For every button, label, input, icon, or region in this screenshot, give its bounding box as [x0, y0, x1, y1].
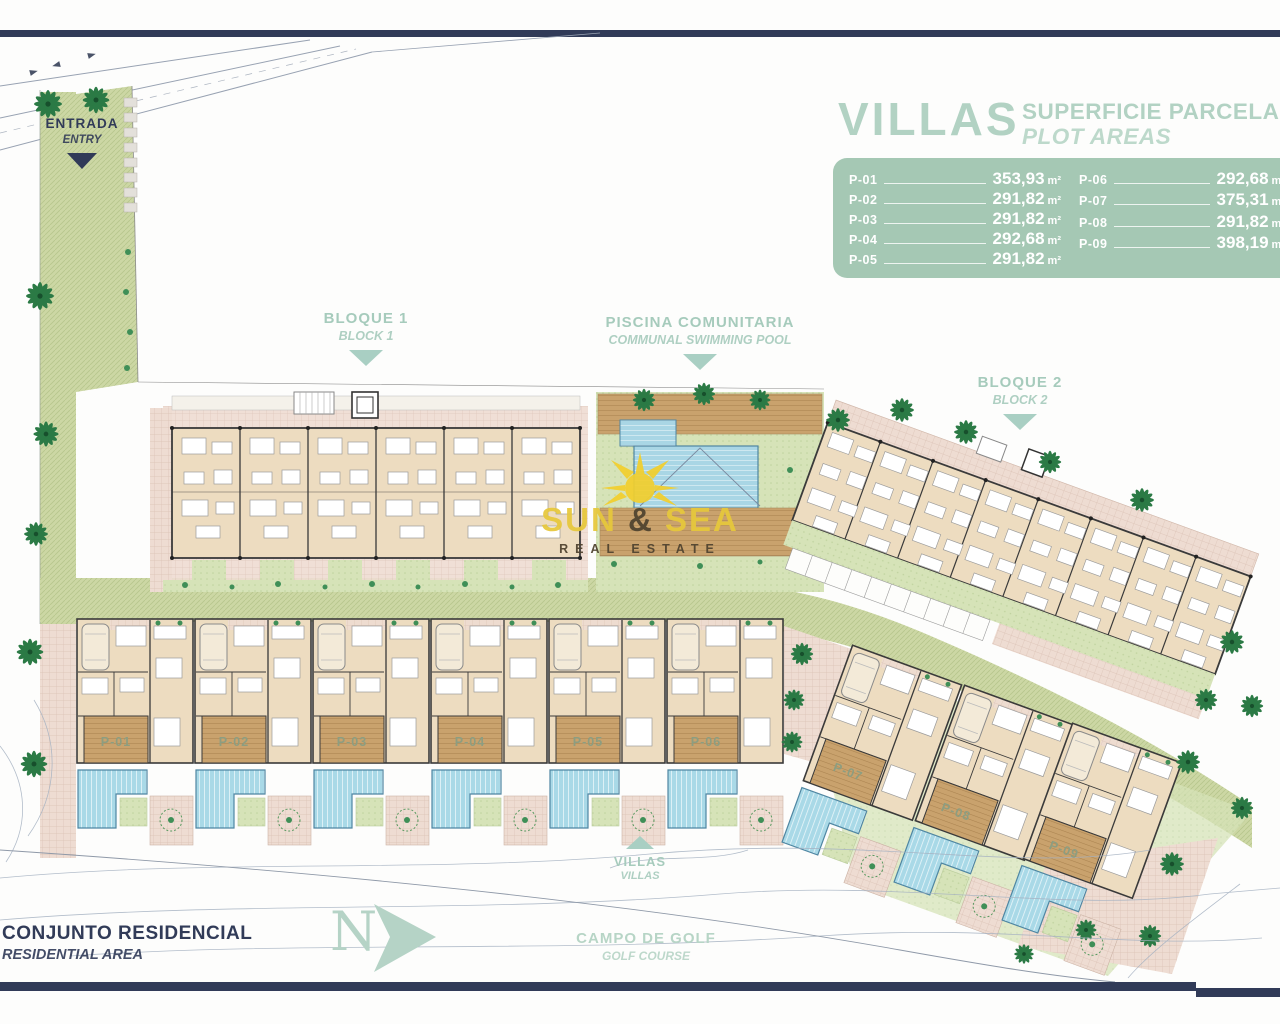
top-border-bar [0, 30, 1280, 37]
plot-id: P-07 [1079, 194, 1107, 208]
table-row: P-08291,82m² [1079, 212, 1280, 233]
block1-arrow-icon [349, 350, 383, 366]
plot-id: P-03 [849, 213, 877, 227]
plot-unit: m² [1048, 195, 1061, 207]
table-row: P-06292,68m² [1079, 169, 1280, 190]
villa-plot-label: P-05 [573, 735, 603, 749]
entrance-marker: ENTRADA ENTRY [34, 116, 130, 169]
block1-subtitle: BLOCK 1 [298, 329, 434, 345]
villa-plot-label: P-06 [691, 735, 721, 749]
golf-title: CAMPO DE GOLF [556, 930, 736, 949]
brand-sun: SUN [541, 501, 617, 538]
block1-title: BLOQUE 1 [298, 310, 434, 329]
plot-id: P-01 [849, 173, 877, 187]
pool-arrow-icon [683, 354, 717, 370]
table-row: P-03291,82m² [849, 209, 1061, 229]
leader-line [1114, 226, 1209, 227]
table-row: P-07375,31m² [1079, 190, 1280, 211]
plot-area: 398,19 [1217, 233, 1269, 253]
site-plan: ENTRADA ENTRY BLOQUE 1 BLOCK 1 PISCINA C… [0, 0, 1280, 1024]
block2-title: BLOQUE 2 [950, 374, 1090, 393]
legend-title: VILLAS [838, 92, 1020, 146]
plot-unit: m² [1272, 239, 1280, 251]
block2-subtitle: BLOCK 2 [950, 393, 1090, 409]
villas-marker: VILLAS VILLAS [588, 836, 692, 884]
pool-title: PISCINA COMUNITARIA [592, 314, 808, 333]
plot-areas-col1: P-01353,93m² P-02291,82m² P-03291,82m² P… [849, 169, 1061, 268]
residential-subtitle: RESIDENTIAL AREA [2, 946, 252, 964]
leader-line [1114, 247, 1209, 248]
table-row: P-09398,19m² [1079, 233, 1280, 254]
plot-unit: m² [1272, 218, 1280, 230]
villas-arrow-icon [626, 836, 654, 849]
villa-plot-label: P-02 [219, 735, 249, 749]
golf-subtitle: GOLF COURSE [556, 949, 736, 964]
block2-arrow-icon [1003, 414, 1037, 430]
leader-line [884, 243, 985, 244]
leader-line [884, 263, 985, 264]
brand-name: SUN & SEA [520, 501, 760, 539]
plot-id: P-06 [1079, 173, 1107, 187]
road-arrows [29, 51, 96, 76]
plot-area: 291,82 [1217, 212, 1269, 232]
plot-areas-col2: P-06292,68m² P-07375,31m² P-08291,82m² P… [1079, 169, 1280, 268]
villa-plot-label: P-01 [101, 735, 131, 749]
villas-row [77, 619, 783, 845]
plot-unit: m² [1048, 235, 1061, 247]
brand-sea: SEA [665, 501, 739, 538]
villa-plot-label: P-03 [337, 735, 367, 749]
table-row: P-05291,82m² [849, 249, 1061, 269]
villas-title: VILLAS [588, 854, 692, 870]
table-row: P-01353,93m² [849, 169, 1061, 189]
plot-area: 291,82 [993, 249, 1045, 269]
leader-line [884, 223, 985, 224]
golf-course-label: CAMPO DE GOLF GOLF COURSE [556, 930, 736, 964]
table-row: P-02291,82m² [849, 189, 1061, 209]
plot-id: P-02 [849, 193, 877, 207]
compass-arrow [374, 904, 436, 972]
leader-line [1114, 204, 1209, 205]
palm-garden-left [40, 624, 76, 858]
plot-unit: m² [1048, 175, 1061, 187]
legend-subtitle-es: SUPERFICIE PARCELA [1022, 99, 1279, 124]
brand-tagline: REAL ESTATE [520, 542, 760, 556]
bottom-border-bar-step [1196, 988, 1280, 997]
plot-id: P-09 [1079, 237, 1107, 251]
plot-area: 292,68 [1217, 169, 1269, 189]
bottom-border-bar [0, 982, 1196, 991]
plot-id: P-08 [1079, 216, 1107, 230]
entrance-title: ENTRADA [34, 116, 130, 133]
legend-subtitle-en: PLOT AREAS [1022, 124, 1171, 149]
watermark: SUN & SEA REAL ESTATE [520, 448, 760, 556]
brand-ampersand: & [628, 501, 654, 538]
plot-boundary-line [138, 382, 824, 389]
plot-area: 291,82 [993, 189, 1045, 209]
plot-area: 375,31 [1217, 190, 1269, 210]
entrance-arrow-icon [67, 153, 97, 169]
table-row: P-04292,68m² [849, 229, 1061, 249]
entrance-subtitle: ENTRY [34, 133, 130, 147]
villas-subtitle: VILLAS [588, 870, 692, 884]
leader-line [1114, 183, 1209, 184]
plot-area: 353,93 [993, 169, 1045, 189]
compass-north-letter: N [330, 900, 377, 963]
plot-area: 291,82 [993, 209, 1045, 229]
residential-title: CONJUNTO RESIDENCIAL [2, 922, 252, 946]
block1-marker: BLOQUE 1 BLOCK 1 [298, 310, 434, 366]
leader-line [884, 183, 985, 184]
plot-unit: m² [1272, 175, 1280, 187]
block2-marker: BLOQUE 2 BLOCK 2 [950, 374, 1090, 430]
villa-plot-label: P-04 [455, 735, 485, 749]
residential-area-label: CONJUNTO RESIDENCIAL RESIDENTIAL AREA [2, 922, 252, 964]
legend-subtitle: SUPERFICIE PARCELA PLOT AREAS [1022, 99, 1279, 149]
plot-id: P-05 [849, 253, 877, 267]
plot-unit: m² [1272, 196, 1280, 208]
leader-line [884, 203, 985, 204]
pool-subtitle: COMMUNAL SWIMMING POOL [592, 333, 808, 349]
plot-unit: m² [1048, 255, 1061, 267]
plot-id: P-04 [849, 233, 877, 247]
plot-areas-table: P-01353,93m² P-02291,82m² P-03291,82m² P… [833, 158, 1280, 278]
plot-unit: m² [1048, 215, 1061, 227]
communal-pool-marker: PISCINA COMUNITARIA COMMUNAL SWIMMING PO… [592, 314, 808, 370]
plot-area: 292,68 [993, 229, 1045, 249]
